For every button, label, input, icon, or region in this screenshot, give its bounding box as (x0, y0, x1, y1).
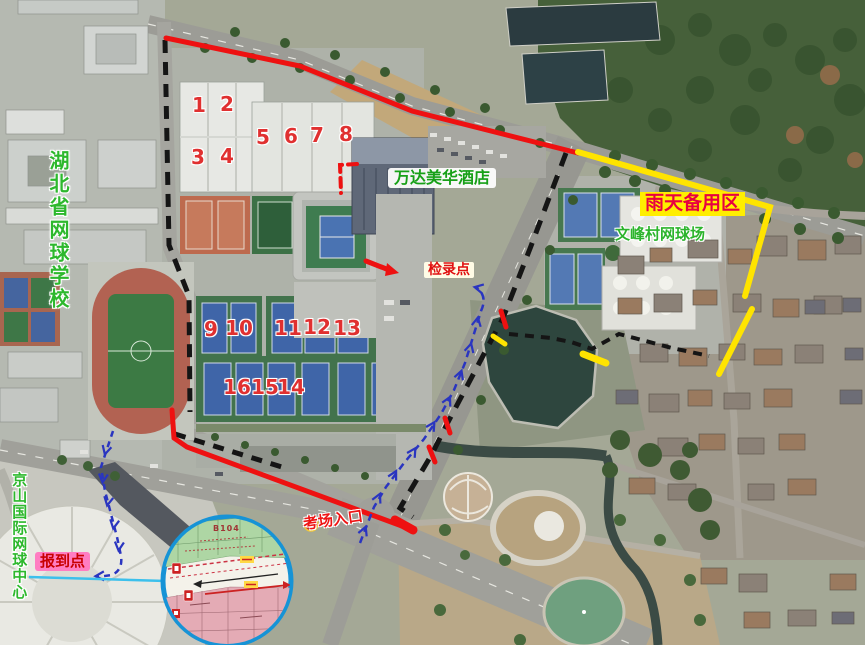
campus-mini-courts (0, 272, 60, 346)
athletics-track (88, 262, 194, 440)
clay-courts (180, 196, 298, 254)
pond-north-1 (506, 2, 660, 46)
red-badge (304, 517, 318, 531)
screenshot: 湖北省网球学校京山国际网球中心万达美华酒店雨天备用区文峰村网球场检录点考场入口报… (0, 0, 865, 645)
satellite-map (0, 0, 865, 645)
pond-north-2 (522, 50, 608, 104)
